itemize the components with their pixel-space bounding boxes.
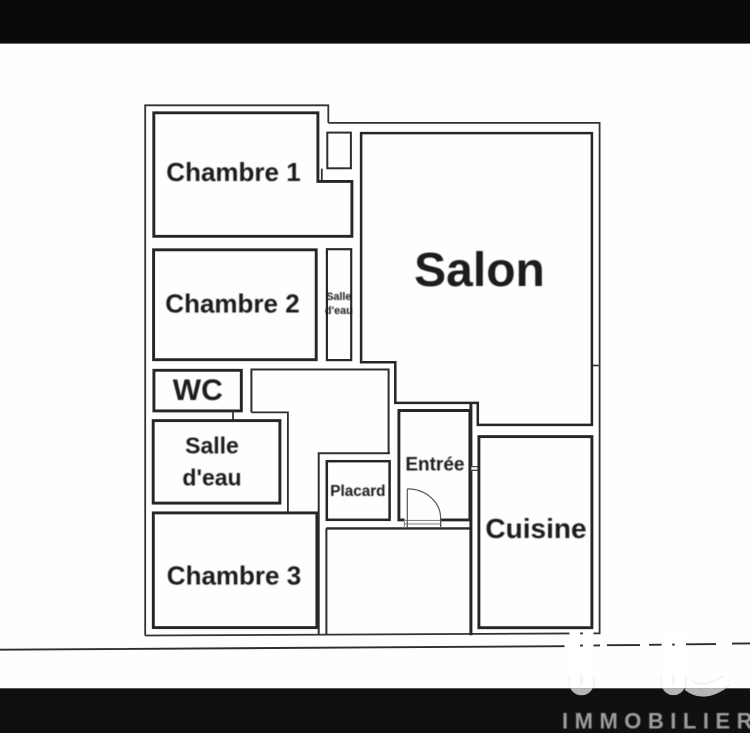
svg-text:Chambre 2: Chambre 2 <box>165 289 299 319</box>
svg-text:Chambre 3: Chambre 3 <box>167 561 301 591</box>
svg-text:Salle: Salle <box>326 291 351 303</box>
svg-text:WC: WC <box>173 374 223 407</box>
svg-text:Chambre 1: Chambre 1 <box>166 157 300 187</box>
svg-text:d'eau: d'eau <box>325 305 353 317</box>
svg-text:Entrée: Entrée <box>405 455 464 476</box>
svg-text:Cuisine: Cuisine <box>485 513 586 544</box>
svg-text:IMMOBILIER: IMMOBILIER <box>562 709 750 733</box>
svg-text:d'eau: d'eau <box>182 465 241 491</box>
svg-text:Placard: Placard <box>330 483 385 500</box>
svg-text:Salon: Salon <box>414 244 545 297</box>
svg-text:Salle: Salle <box>185 433 239 459</box>
